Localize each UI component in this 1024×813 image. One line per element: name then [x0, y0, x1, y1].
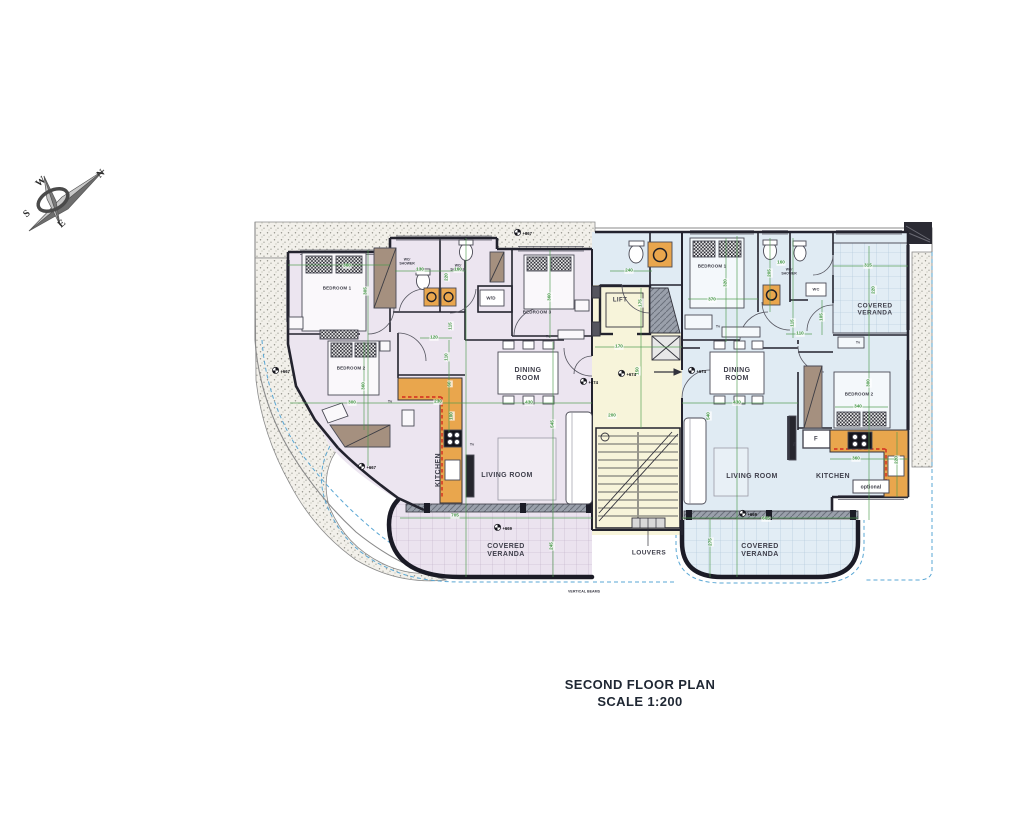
beam-strip-left — [406, 504, 592, 512]
title-block: SECOND FLOOR PLAN SCALE 1:200 — [565, 677, 716, 711]
veranda-right-floor — [682, 520, 858, 577]
louver-vent — [632, 518, 665, 528]
floor-plan-sheet: NWSEBEDROOM 1BEDROOM 2BEDROOM 3DINING RO… — [0, 0, 1024, 813]
compass-rose — [29, 170, 104, 231]
floor-plan-drawing — [0, 0, 1024, 813]
plan-scale: SCALE 1:200 — [565, 694, 716, 711]
veranda-top-right-floor — [833, 243, 908, 333]
plan-title: SECOND FLOOR PLAN — [565, 677, 716, 694]
